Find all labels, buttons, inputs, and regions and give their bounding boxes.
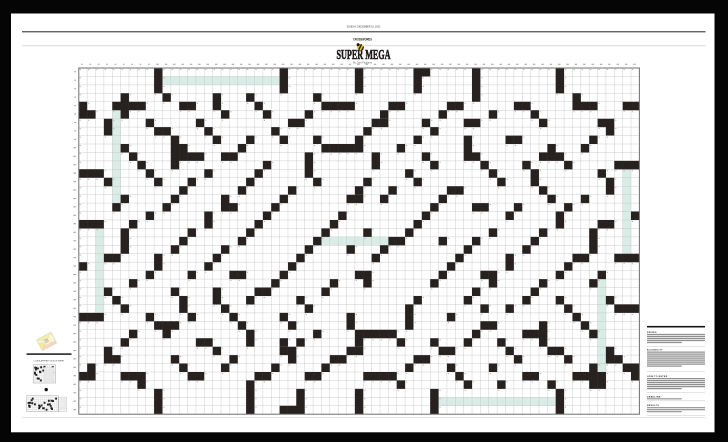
svg-text:DEADLINE: DEADLINE (647, 395, 661, 398)
svg-text:ELIGIBILITY: ELIGIBILITY (647, 350, 663, 352)
svg-text:CROSSWORDS: CROSSWORDS (353, 38, 372, 42)
svg-text:RESULTS: RESULTS (647, 405, 659, 407)
svg-text:PRIZES: PRIZES (647, 332, 657, 334)
svg-text:CLUES APPEAR ON SLIP SHEET: CLUES APPEAR ON SLIP SHEET (34, 360, 66, 363)
svg-text:HOW TO ENTER: HOW TO ENTER (647, 376, 668, 378)
svg-text:By Joel Fagliano: By Joel Fagliano (353, 61, 373, 65)
svg-text:SUNDAY, DECEMBER 18, 2022: SUNDAY, DECEMBER 18, 2022 (347, 24, 381, 28)
